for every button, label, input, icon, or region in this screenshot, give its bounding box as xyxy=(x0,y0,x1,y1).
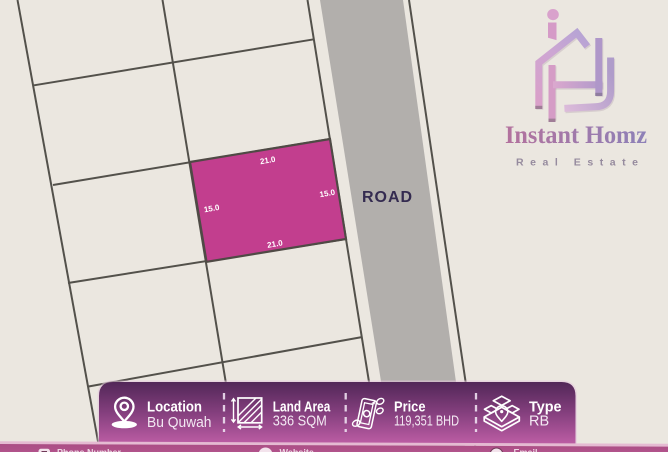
svg-text:RB: RB xyxy=(529,414,549,430)
svg-text:Website: Website xyxy=(280,448,314,453)
svg-text:Instant Homz: Instant Homz xyxy=(505,122,647,149)
svg-text:336 SQM: 336 SQM xyxy=(273,414,327,430)
svg-text:Phone Number: Phone Number xyxy=(57,448,122,453)
svg-text:119,351 BHD: 119,351 BHD xyxy=(394,414,459,430)
svg-text:Email: Email xyxy=(514,448,538,453)
svg-text:Bu Quwah: Bu Quwah xyxy=(147,415,212,431)
svg-text:Location: Location xyxy=(147,399,202,416)
svg-text:ROAD: ROAD xyxy=(362,189,413,206)
